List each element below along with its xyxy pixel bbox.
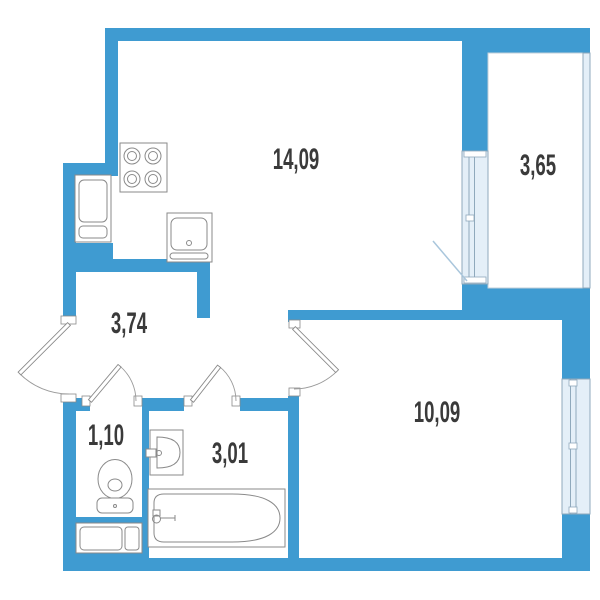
wall-left-upper [105,28,118,176]
stove-icon [120,143,167,192]
room-door-icon [289,320,339,396]
room-label-room: 10,09 [414,396,461,430]
wall-below-balcony-window [462,284,488,320]
floor-plan: 14,09 3,65 3,74 1,10 3,01 10,09 [0,0,600,600]
vent-shaft-icon [76,523,142,553]
wc-door-icon [82,364,142,406]
walls [63,28,590,571]
wall-between-rooms [288,310,462,320]
room-label-bathroom: 3,01 [212,437,248,471]
toilet-icon [97,460,133,514]
fridge-icon [75,175,111,242]
balcony-window-icon [462,151,488,284]
room-label-balcony: 3,65 [520,149,556,183]
kitchen-sink-icon [167,213,212,262]
wall-bottom [63,558,590,571]
bathtub-icon [148,489,285,547]
balcony-side-glazing-icon [583,53,590,288]
wall-top-main [105,28,462,41]
bathroom-door-icon [184,365,240,406]
room-label-wc: 1,10 [88,419,124,453]
floor-plan-drawing [0,0,600,600]
wall-kitchen-stub [197,259,210,318]
room-window-icon [562,379,590,514]
washbasin-icon [146,430,183,475]
wall-hall-seg-right [240,398,299,411]
wall-left-mid [63,163,76,316]
room-label-hallway: 3,74 [111,307,147,341]
wall-room-door-lower [288,396,299,558]
entrance-door-icon [18,316,76,402]
room-label-kitchen-living: 14,09 [273,143,320,177]
wall-above-balcony-window [462,41,488,151]
